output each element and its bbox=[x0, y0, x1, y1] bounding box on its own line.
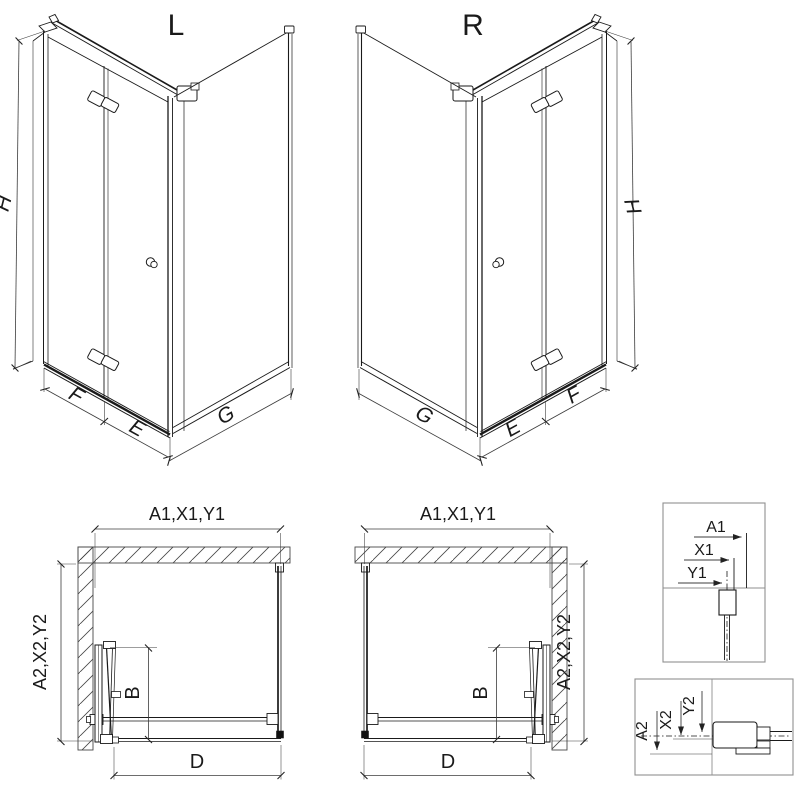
iso-right-title: R bbox=[462, 9, 484, 42]
detail-callout-top-profile: A1 X1 Y1 bbox=[663, 503, 765, 662]
plan-left-dim-b: B bbox=[122, 686, 144, 699]
iso-left-dim-h: H bbox=[0, 192, 17, 213]
plan-right-dim-b: B bbox=[470, 686, 492, 699]
detail-callout-wall-profile: A2 X2 Y2 bbox=[634, 679, 793, 775]
detail-top-dim-a1: A1 bbox=[706, 519, 726, 536]
iso-left-dim-f: F bbox=[65, 382, 88, 409]
diagram-canvas: L H F E G R H F E G A1,X1,Y1 A2,X2,Y2 B … bbox=[0, 0, 800, 800]
detail-top-dim-y1: Y1 bbox=[687, 565, 707, 582]
plan-left-dim-a2x2y2: A2,X2,Y2 bbox=[30, 614, 50, 690]
detail-top-dim-x1: X1 bbox=[694, 542, 714, 559]
plan-right-dim-d: D bbox=[441, 751, 455, 773]
plan-view-left: A1,X1,Y1 A2,X2,Y2 B D bbox=[30, 504, 290, 780]
iso-right-dim-g: G bbox=[411, 401, 436, 429]
iso-left-title: L bbox=[168, 9, 185, 42]
plan-view-right: A1,X1,Y1 A2,X2,Y2 B D bbox=[355, 504, 588, 780]
detail-bottom-dim-a2: A2 bbox=[634, 721, 651, 741]
plan-left-dim-a1x1y1: A1,X1,Y1 bbox=[149, 504, 225, 524]
plan-right-dim-a2x2y2: A2,X2,Y2 bbox=[554, 614, 574, 690]
iso-view-left: L H F E G bbox=[0, 9, 294, 461]
iso-right-dim-f: F bbox=[563, 382, 586, 409]
plan-right-dim-a1x1y1: A1,X1,Y1 bbox=[420, 504, 496, 524]
detail-bottom-dim-x2: X2 bbox=[658, 710, 675, 730]
plan-left-dim-d: D bbox=[190, 751, 204, 773]
iso-view-right: R H F E G bbox=[356, 9, 647, 461]
shower-enclosure-technical-drawing: L H F E G R H F E G A1,X1,Y1 A2,X2,Y2 B … bbox=[0, 0, 800, 800]
iso-left-dim-g: G bbox=[213, 401, 238, 429]
detail-bottom-dim-y2: Y2 bbox=[681, 696, 698, 716]
iso-right-dim-h: H bbox=[620, 196, 646, 217]
